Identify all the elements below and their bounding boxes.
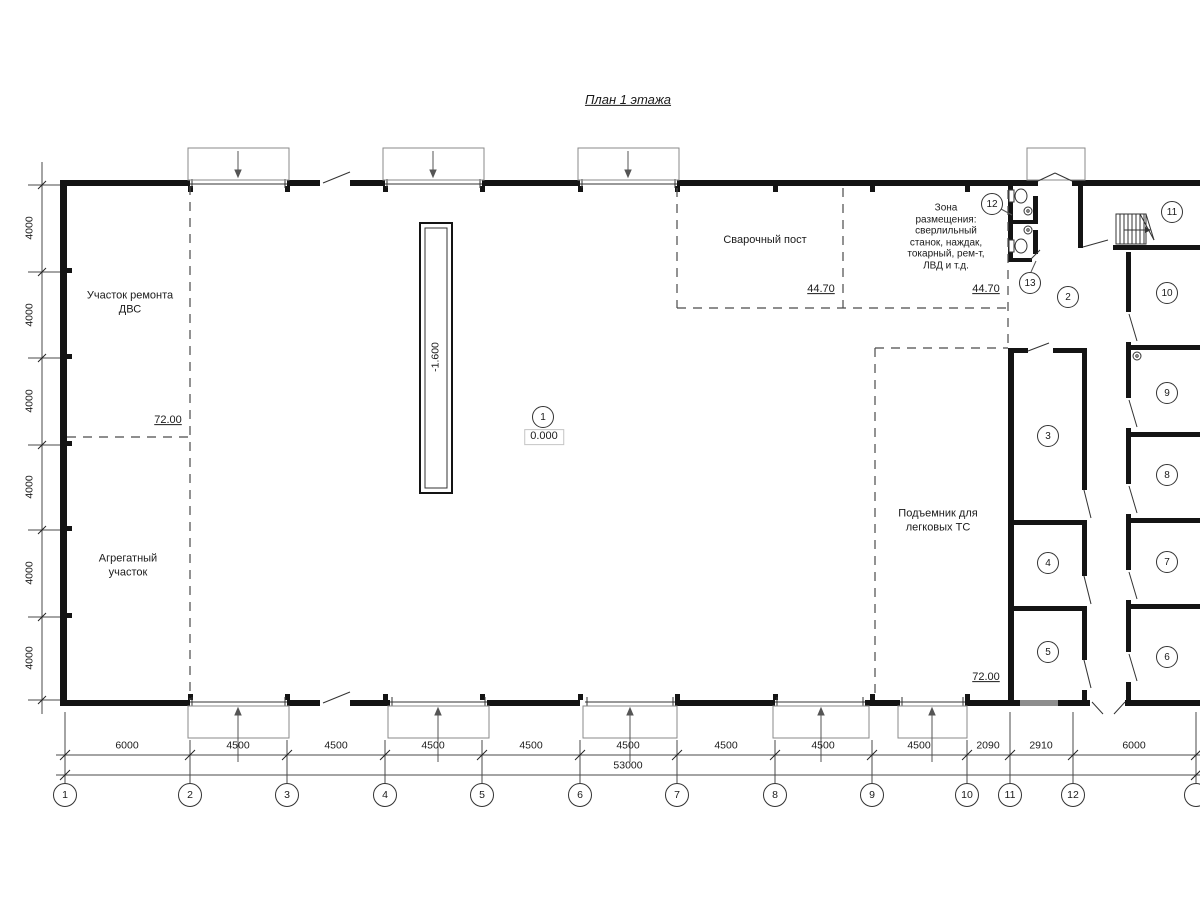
room-bubble-10: 10 [1156,282,1178,304]
zone-label-placement: Зона размещения: сверлильный станок, наж… [907,203,984,272]
room-bubble-13: 13 [1019,272,1041,294]
room-bubble-4: 4 [1037,552,1059,574]
dim-bottom-2: 4500 [226,739,249,752]
dim-bottom-7: 4500 [714,739,737,752]
dim-left-5: 4000 [23,561,36,584]
area-mark-placement: 44.70 [972,283,1000,297]
axis-bubble-11: 11 [998,783,1022,807]
dim-bottom-8: 4500 [811,739,834,752]
axis-bubble-5: 5 [470,783,494,807]
axis-bubble-1: 1 [53,783,77,807]
dim-bottom-11: 2910 [1029,739,1052,752]
dim-bottom-10: 2090 [976,739,999,752]
room-bubble-9: 9 [1156,382,1178,404]
room-bubble-7: 7 [1156,551,1178,573]
area-mark-lift: 72.00 [972,671,1000,685]
dim-bottom-4: 4500 [421,739,444,752]
area-mark-welding: 44.70 [807,283,835,297]
dim-bottom-3: 4500 [324,739,347,752]
plan-linework [0,0,1200,900]
axis-bubble-12: 12 [1061,783,1085,807]
level-mark-pit: -1.600 [427,342,444,372]
room-bubble-11: 11 [1161,201,1183,223]
zone-label-welding: Сварочный пост [723,234,806,248]
room-bubble-8: 8 [1156,464,1178,486]
area-mark-dvs: 72.00 [154,414,182,428]
dim-left-4: 4000 [23,475,36,498]
room-bubble-6: 6 [1156,646,1178,668]
dim-left-6: 4000 [23,646,36,669]
drawing-title: План 1 этажа [585,92,671,108]
axis-bubble-4: 4 [373,783,397,807]
axis-bubble-6: 6 [568,783,592,807]
room-bubble-2: 2 [1057,286,1079,308]
dim-bottom-12: 6000 [1122,739,1145,752]
dim-left-3: 4000 [23,389,36,412]
dim-left-1: 4000 [23,216,36,239]
dim-total: 53000 [613,759,642,772]
axis-bubble-8: 8 [763,783,787,807]
room-bubble-3: 3 [1037,425,1059,447]
axis-bubble-7: 7 [665,783,689,807]
zone-label-lift: Подъемник для легковых ТС [898,507,977,535]
dim-bottom-5: 4500 [519,739,542,752]
dim-bottom-6: 4500 [616,739,639,752]
dim-left-2: 4000 [23,303,36,326]
room-bubble-1: 1 [532,406,554,428]
dim-bottom-9: 4500 [907,739,930,752]
room-bubble-12: 12 [981,193,1003,215]
axis-bubble-3: 3 [275,783,299,807]
axis-bubble-10: 10 [955,783,979,807]
room-bubble-5: 5 [1037,641,1059,663]
zone-label-aggregate: Агрегатный участок [99,552,157,580]
axis-bubble-2: 2 [178,783,202,807]
axis-bubble-9: 9 [860,783,884,807]
dim-bottom-1: 6000 [115,739,138,752]
zone-label-dvs: Участок ремонта ДВС [87,289,173,317]
level-mark-main: 0.000 [524,429,564,445]
floor-plan-sheet: План 1 этажа Участок ремонта ДВС Агрегат… [0,0,1200,900]
